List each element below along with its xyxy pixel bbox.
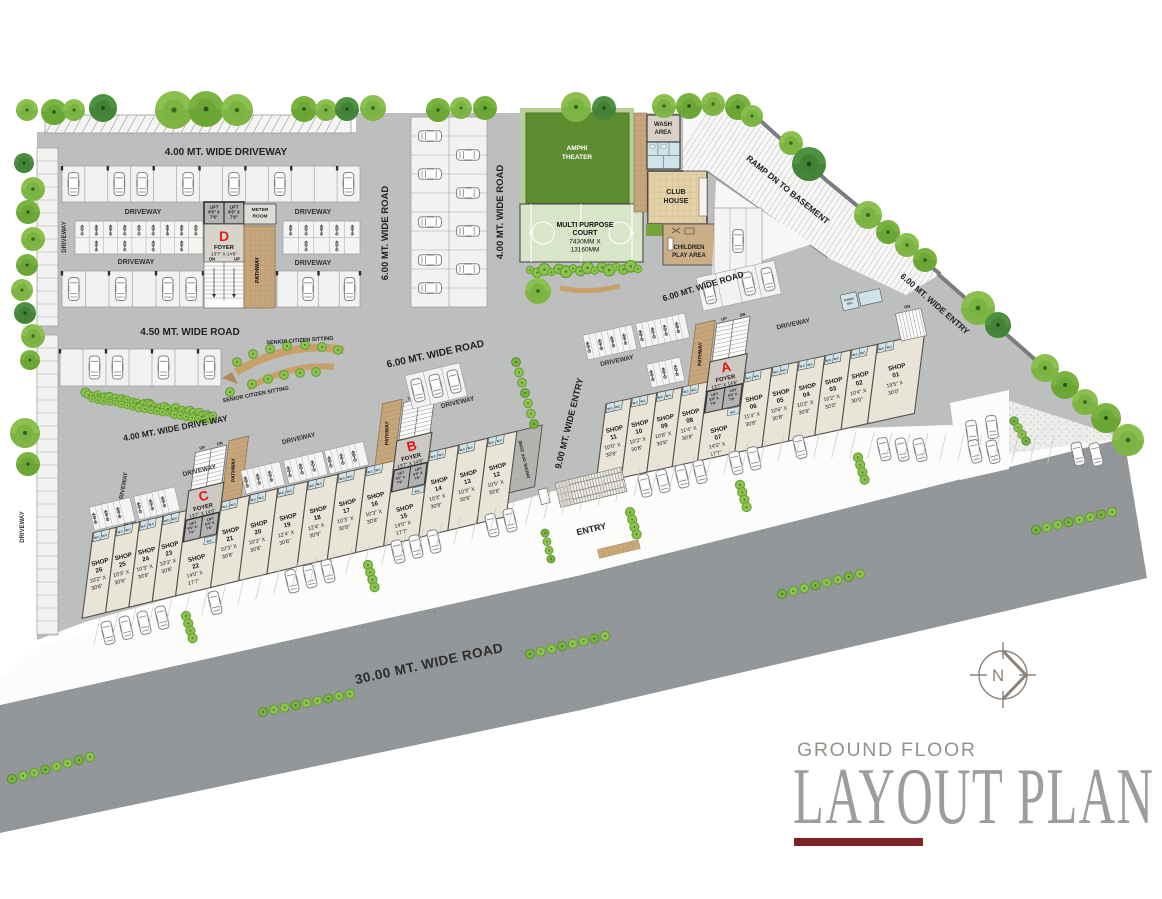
svg-text:THEATER: THEATER [562, 154, 593, 161]
svg-text:MULTI PURPOSE: MULTI PURPOSE [556, 222, 613, 229]
svg-text:DRIVEWAY: DRIVEWAY [295, 260, 332, 267]
svg-text:WASH: WASH [654, 122, 672, 128]
svg-text:DRIVEWAY: DRIVEWAY [62, 221, 68, 252]
svg-text:7'6": 7'6" [230, 215, 238, 220]
svg-text:4.00 MT. WIDE ROAD: 4.00 MT. WIDE ROAD [495, 165, 506, 260]
svg-text:DRIVEWAY: DRIVEWAY [125, 209, 162, 216]
svg-text:COURT: COURT [573, 230, 599, 237]
svg-text:FOYER: FOYER [214, 245, 235, 251]
svg-text:D: D [219, 228, 229, 244]
svg-text:METER: METER [252, 207, 269, 213]
svg-text:LAYOUT PLAN: LAYOUT PLAN [793, 752, 1154, 840]
svg-text:CHILDREN: CHILDREN [674, 245, 705, 251]
svg-text:4.00 MT. WIDE DRIVEWAY: 4.00 MT. WIDE DRIVEWAY [165, 147, 288, 158]
svg-text:4.50 MT. WIDE ROAD: 4.50 MT. WIDE ROAD [140, 327, 239, 338]
svg-text:DRIVEWAY: DRIVEWAY [295, 209, 332, 216]
svg-text:AREA: AREA [654, 130, 672, 136]
svg-text:DRIVEWAY: DRIVEWAY [20, 511, 26, 542]
svg-text:PLAY AREA: PLAY AREA [672, 253, 706, 259]
svg-text:PATHWAY: PATHWAY [697, 341, 704, 366]
svg-text:PATHWAY: PATHWAY [255, 257, 261, 284]
svg-text:7430MM X: 7430MM X [569, 239, 601, 246]
svg-text:13160MM: 13160MM [571, 247, 600, 254]
svg-text:7'6": 7'6" [210, 215, 218, 220]
svg-text:AMPHI: AMPHI [567, 145, 588, 152]
svg-text:ROOM: ROOM [253, 214, 268, 220]
svg-text:UP: UP [234, 257, 240, 262]
svg-text:6.00 MT. WIDE ROAD: 6.00 MT. WIDE ROAD [380, 186, 391, 281]
svg-text:N: N [992, 666, 1004, 685]
svg-text:DRIVEWAY: DRIVEWAY [118, 259, 155, 266]
svg-text:PATHWAY: PATHWAY [384, 421, 390, 446]
svg-text:DN: DN [209, 257, 215, 262]
svg-text:CLUB: CLUB [666, 189, 685, 196]
svg-text:PATHWAY: PATHWAY [231, 458, 237, 483]
svg-text:HOUSE: HOUSE [664, 198, 689, 205]
